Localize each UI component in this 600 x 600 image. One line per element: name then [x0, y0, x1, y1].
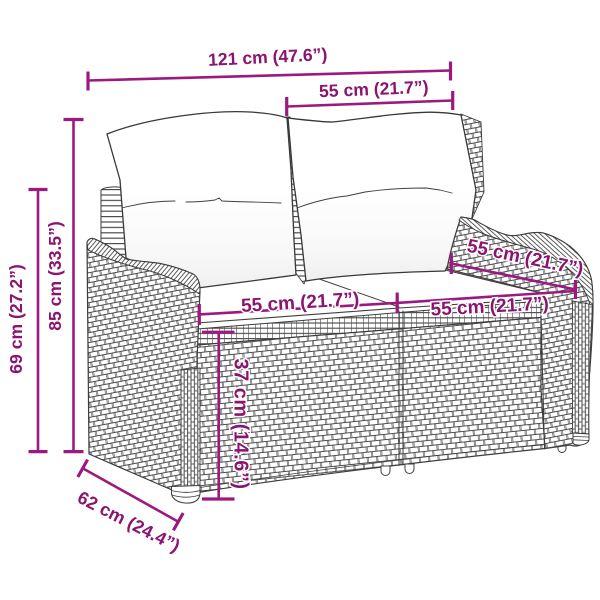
svg-text:85 cm (33.5”): 85 cm (33.5”)	[45, 221, 65, 331]
svg-text:37 cm (14.6”): 37 cm (14.6”)	[230, 358, 252, 489]
svg-text:69 cm (27.2”): 69 cm (27.2”)	[6, 264, 26, 374]
